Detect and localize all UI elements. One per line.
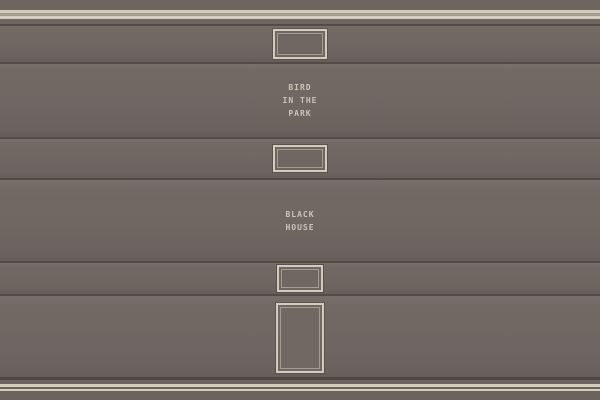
book-spine-4[interactable] <box>0 296 600 377</box>
book-spine-1[interactable] <box>0 26 600 62</box>
book-spine-3[interactable] <box>0 263 600 294</box>
book-spine-black-house[interactable]: BLACK HOUSE <box>0 180 600 261</box>
label-plate-icon[interactable] <box>273 29 327 59</box>
shelf-top-edge <box>0 0 600 26</box>
book-title-bird-in-the-park: BIRD IN THE PARK <box>283 81 318 120</box>
label-plate-icon[interactable] <box>273 145 327 172</box>
tall-panel-icon[interactable] <box>276 303 324 373</box>
book-spine-2[interactable] <box>0 139 600 178</box>
book-stack: BIRD IN THE PARK BLACK HOUSE <box>0 0 600 400</box>
label-plate-icon[interactable] <box>277 265 323 292</box>
book-spine-bird-in-the-park[interactable]: BIRD IN THE PARK <box>0 64 600 137</box>
shelf-bottom-edge <box>0 380 600 400</box>
book-title-black-house: BLACK HOUSE <box>285 208 314 234</box>
